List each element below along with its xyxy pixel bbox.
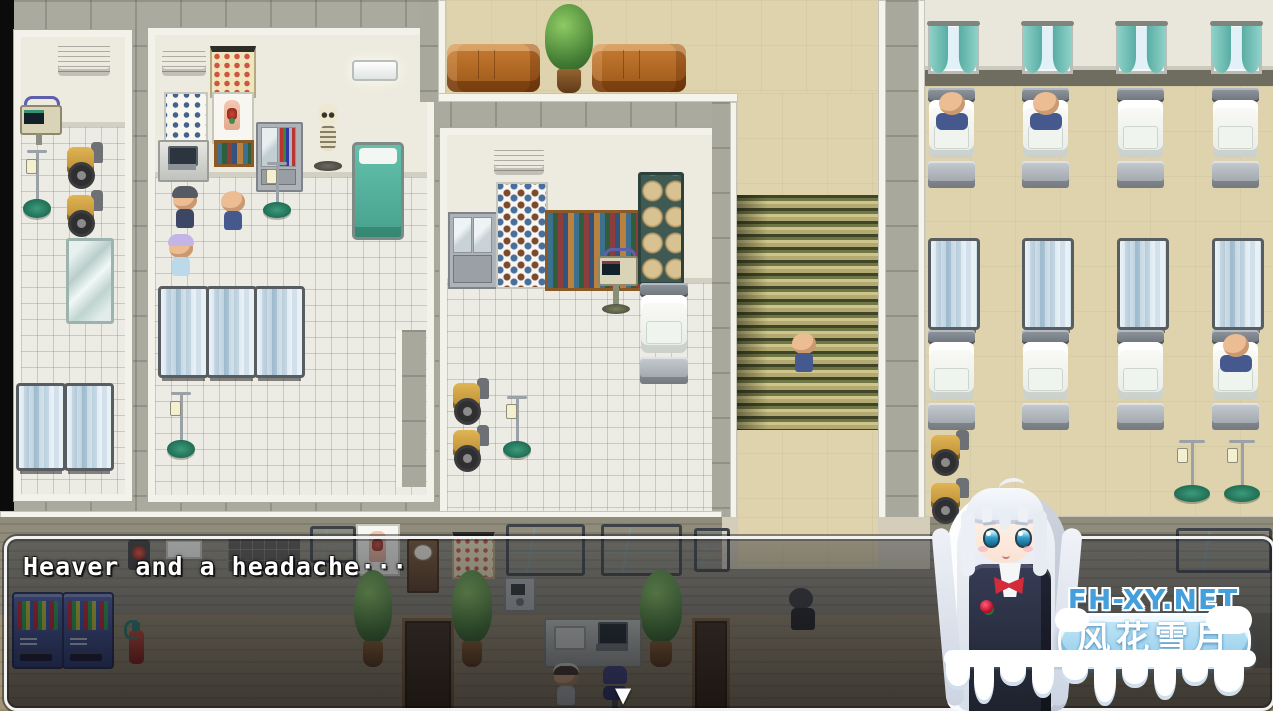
privacy-screen xyxy=(64,383,114,471)
air-conditioner xyxy=(58,42,110,76)
air-conditioner xyxy=(494,148,544,175)
privacy-screen xyxy=(1022,238,1074,330)
wall-border xyxy=(438,0,446,100)
medical-monitor-cart xyxy=(598,248,636,320)
game-screen: Heaver and a headache··· ▼ FH-XY.NET 风花雪… xyxy=(0,0,1273,711)
stairwell-left-border xyxy=(730,102,737,542)
privacy-screen xyxy=(158,286,209,378)
potted-plant xyxy=(545,4,593,93)
wheelchair xyxy=(64,190,106,237)
wheelchair xyxy=(450,378,492,425)
iv-stand xyxy=(166,388,196,458)
exam-room-wall-notch xyxy=(396,330,426,487)
window-with-curtains xyxy=(1116,22,1167,74)
wall-column xyxy=(886,0,918,540)
jar-shelf xyxy=(496,182,548,289)
skeleton-model xyxy=(310,103,346,171)
window-with-curtains xyxy=(1211,22,1262,74)
ward-left-border xyxy=(918,0,925,524)
small-bookshelf xyxy=(214,140,254,167)
iv-stand xyxy=(262,158,292,218)
hospital-bed xyxy=(1212,88,1259,188)
glass-cabinet xyxy=(448,212,498,289)
storage-rack xyxy=(638,172,684,285)
dialogue-text: Heaver and a headache··· xyxy=(23,552,408,581)
privacy-screen xyxy=(928,238,980,330)
continue-arrow-icon[interactable]: ▼ xyxy=(615,683,631,707)
waiting-area-wall-border xyxy=(438,93,738,102)
privacy-screen xyxy=(1117,238,1169,330)
hospital-bed xyxy=(640,283,688,384)
ceiling-light xyxy=(352,60,398,81)
iv-stand xyxy=(22,146,52,218)
couch xyxy=(447,44,540,92)
wall-column xyxy=(712,102,730,542)
window-with-curtains xyxy=(1022,22,1073,74)
stairwell-right-border xyxy=(878,0,886,520)
iv-stand xyxy=(1222,436,1262,502)
ward-patient-sprite xyxy=(1028,92,1064,134)
bald-patient-sprite xyxy=(218,188,248,235)
air-conditioner xyxy=(162,50,206,76)
hospital-bed xyxy=(928,330,975,430)
hospital-bed xyxy=(1117,88,1164,188)
privacy-screen xyxy=(254,286,305,378)
privacy-screen xyxy=(16,383,66,471)
nurse-sprite xyxy=(166,234,196,281)
wheelchair xyxy=(64,142,106,189)
wheelchair xyxy=(450,425,492,472)
mirror xyxy=(66,238,114,324)
green-exam-bed xyxy=(352,142,404,240)
medical-monitor-cart xyxy=(20,96,60,148)
snow-drip-decoration xyxy=(944,650,1256,710)
ward-patient-sprite xyxy=(934,92,970,134)
hospital-bed xyxy=(1022,330,1069,430)
wall-column xyxy=(420,0,440,102)
ward-patient-sprite xyxy=(1218,334,1254,376)
couch xyxy=(592,44,686,92)
privacy-screen xyxy=(206,286,257,378)
bald-man-on-stairs-sprite xyxy=(789,330,819,377)
desk-with-laptop xyxy=(158,140,209,182)
eye-chart xyxy=(164,92,208,144)
wall-calendar xyxy=(210,46,256,98)
staircase-shadow xyxy=(737,195,878,430)
iv-stand xyxy=(502,392,532,458)
iv-stand xyxy=(1172,436,1212,502)
window-with-curtains xyxy=(928,22,979,74)
doctor-sprite xyxy=(170,186,200,233)
anatomy-poster xyxy=(212,92,254,144)
hospital-bed xyxy=(1117,330,1164,430)
privacy-screen xyxy=(1212,238,1264,330)
